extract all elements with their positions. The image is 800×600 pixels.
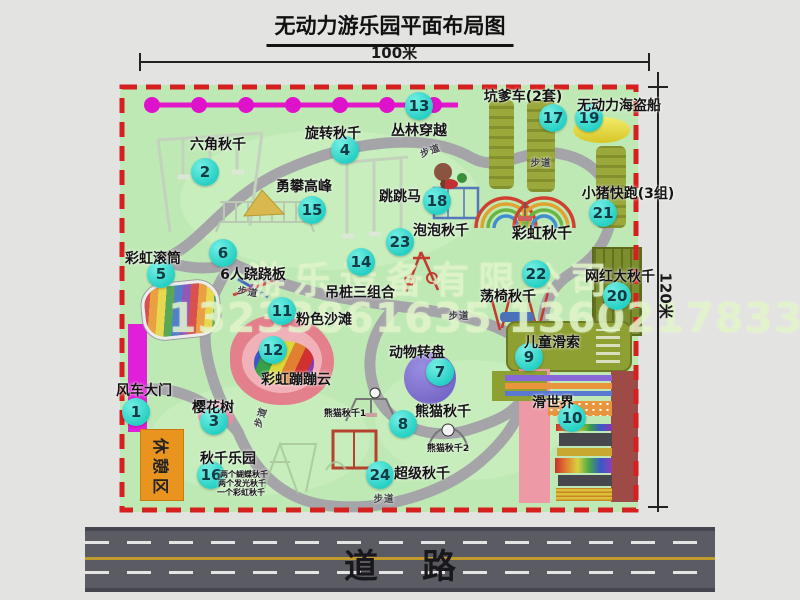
attraction-21-marker: 21 bbox=[589, 199, 617, 227]
attraction-11-marker: 11 bbox=[268, 297, 296, 325]
attraction-17-label: 坑爹车(2套) bbox=[484, 86, 563, 106]
attraction-16-label: 秋千乐园 bbox=[200, 448, 256, 468]
attraction-12-label: 彩虹蹦蹦云 bbox=[261, 369, 331, 389]
footpath-label: 步道 bbox=[250, 405, 270, 429]
height-dimension-label: 120米 bbox=[656, 273, 677, 317]
attraction-23-label: 泡泡秋千 bbox=[413, 220, 469, 240]
footpath-label: 步道 bbox=[236, 282, 259, 299]
attraction-13-marker: 13 bbox=[405, 92, 433, 120]
footpath-label: 步道 bbox=[418, 140, 443, 160]
attraction-20-marker: 20 bbox=[603, 282, 631, 310]
park-layout-map: 无动力游乐园平面布局图 bbox=[0, 0, 800, 600]
attraction-22-marker: 22 bbox=[522, 260, 550, 288]
attraction-24-marker: 24 bbox=[366, 461, 394, 489]
extra-label: 熊猫秋千1 bbox=[324, 406, 366, 419]
extra-label: 熊猫秋千2 bbox=[427, 441, 469, 454]
attraction-23-marker: 23 bbox=[386, 228, 414, 256]
attraction-15-label: 勇攀高峰 bbox=[276, 176, 332, 196]
attraction-17-marker: 17 bbox=[539, 104, 567, 132]
road: 道路 bbox=[85, 527, 715, 592]
attraction-18-label: 跳跳马 bbox=[379, 186, 421, 206]
attraction-19-label: 无动力海盗船 bbox=[577, 95, 661, 115]
attraction-2-marker: 2 bbox=[191, 158, 219, 186]
attraction-18-marker: 18 bbox=[423, 187, 451, 215]
attraction-8-marker: 8 bbox=[389, 410, 417, 438]
attraction-1-marker: 1 bbox=[122, 398, 150, 426]
attraction-22-label: 荡椅秋千 bbox=[480, 286, 536, 306]
extra-label: 一个彩虹秋千 bbox=[217, 487, 265, 498]
attraction-markers-layer: 1风车大门2六角秋千3樱花树4旋转秋千5彩虹滚筒66人跷跷板7动物转盘8熊猫秋千… bbox=[0, 0, 800, 600]
attraction-4-label: 旋转秋千 bbox=[305, 123, 361, 143]
footpath-label: 步道 bbox=[530, 155, 551, 169]
attraction-9-label: 儿童滑索 bbox=[524, 332, 580, 352]
attraction-6-label: 6人跷跷板 bbox=[220, 264, 286, 284]
road-label: 道路 bbox=[344, 539, 500, 588]
attraction-11-label: 粉色沙滩 bbox=[296, 309, 352, 329]
width-dimension-label: 100米 bbox=[371, 42, 417, 63]
attraction-13-label: 丛林穿越 bbox=[391, 120, 447, 140]
attraction-15-marker: 15 bbox=[298, 196, 326, 224]
attraction-7-label: 动物转盘 bbox=[389, 342, 445, 362]
attraction-20-label: 网红大秋千 bbox=[585, 266, 655, 286]
attraction-2-label: 六角秋千 bbox=[190, 134, 246, 154]
attraction-5-label: 彩虹滚筒 bbox=[125, 248, 181, 268]
attraction-14-label: 吊桩三组合 bbox=[325, 282, 395, 302]
footpath-label: 步道 bbox=[448, 308, 469, 322]
footpath-label: 步道 bbox=[373, 491, 394, 505]
attraction-8-label: 熊猫秋千 bbox=[415, 401, 471, 421]
attraction-6-marker: 6 bbox=[209, 239, 237, 267]
extra-label: 彩虹秋千 bbox=[512, 222, 572, 243]
attraction-14-marker: 14 bbox=[347, 248, 375, 276]
attraction-7-marker: 7 bbox=[426, 358, 454, 386]
attraction-21-label: 小猪快跑(3组) bbox=[582, 183, 675, 203]
attraction-10-label: 滑世界 bbox=[532, 392, 574, 412]
attraction-3-label: 樱花树 bbox=[192, 397, 234, 417]
attraction-1-label: 风车大门 bbox=[116, 380, 172, 400]
attraction-12-marker: 12 bbox=[259, 336, 287, 364]
attraction-24-label: 超级秋千 bbox=[394, 463, 450, 483]
